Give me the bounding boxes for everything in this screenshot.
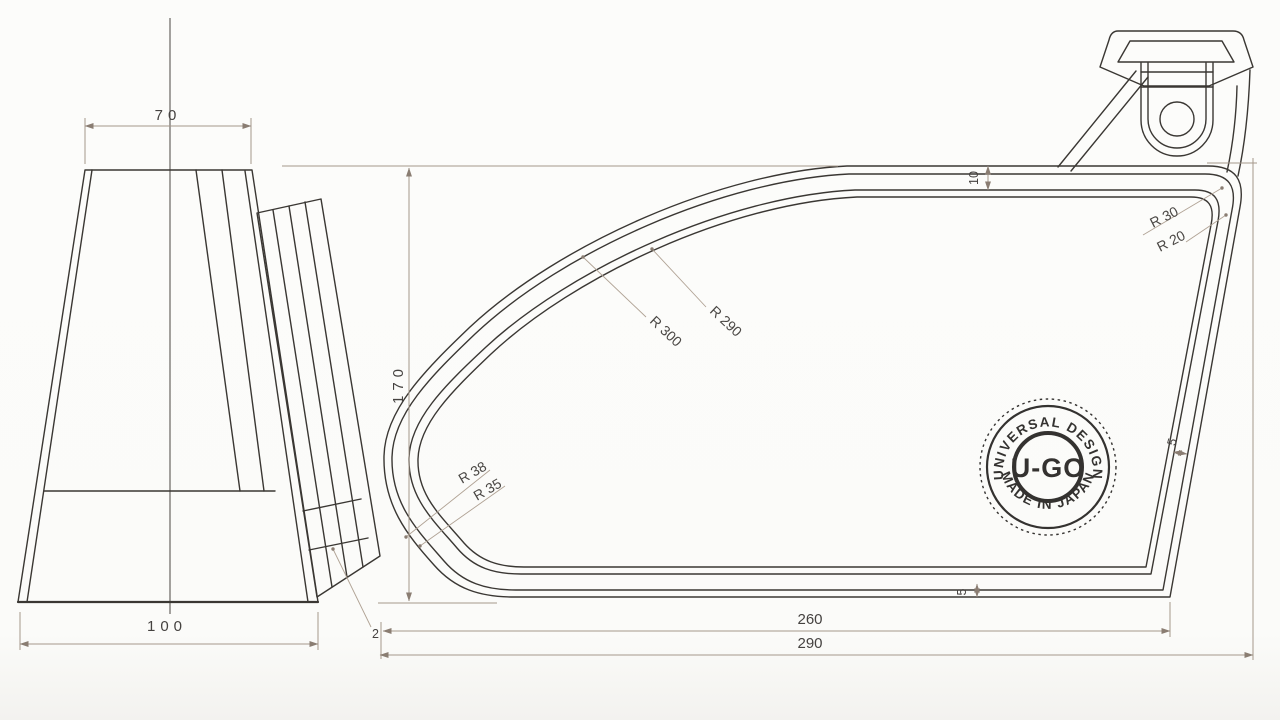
- front-view-outline: [18, 170, 318, 602]
- hook-gusset-line-2: [1071, 77, 1148, 171]
- dim-5-bottom: 5: [955, 588, 969, 595]
- dim-290: 290: [797, 635, 822, 652]
- hook-hole: [1160, 102, 1194, 136]
- label-thickness-2: 2: [372, 627, 379, 641]
- dim-line-5-right: [1173, 452, 1187, 454]
- rear-panel-slat-1: [273, 210, 332, 587]
- radius-label-r300: R 300: [647, 312, 685, 349]
- profile-inner-line: [418, 197, 1212, 567]
- hook-neck-curve-outer: [1238, 70, 1250, 176]
- dim-70: 70: [155, 107, 182, 124]
- stamp-center-text: U-GO: [1011, 453, 1086, 483]
- leader-r290: [652, 249, 706, 307]
- hook-ring-inner: [1118, 41, 1234, 62]
- dim-10: 10: [967, 171, 981, 185]
- left-edge-inner-line: [27, 170, 92, 602]
- rear-panel: [257, 199, 380, 597]
- drawing-sheet: 70 100 170 10 5 5 260 290 2: [0, 0, 1280, 720]
- radius-label-r30: R 30: [1147, 203, 1181, 231]
- wall-fold-line-1: [196, 170, 240, 491]
- dim-170: 170: [390, 364, 407, 404]
- radius-label-r20: R 20: [1154, 227, 1188, 255]
- leader-line-thickness: [333, 549, 371, 627]
- dim-260: 260: [797, 611, 822, 628]
- profile-line-3: [409, 190, 1219, 574]
- hook-ring-outer: [1100, 31, 1253, 86]
- hook-tab-outer: [1141, 63, 1213, 156]
- technical-drawing: 70 100 170 10 5 5 260 290 2: [0, 0, 1280, 720]
- rear-panel-cross-line-1: [303, 499, 361, 511]
- profile-outer-line: [384, 166, 1241, 597]
- dim-5-right: 5: [1164, 437, 1179, 447]
- rear-panel-slat-3: [305, 202, 363, 567]
- rear-panel-slat-2: [289, 206, 347, 577]
- leader-r300: [583, 257, 646, 317]
- leader-r20: [1186, 215, 1226, 242]
- profile-line-2: [392, 174, 1233, 590]
- brand-stamp: UNIVERSAL DESIGN MADE IN JAPAN U-GO: [980, 399, 1116, 535]
- hanging-hook: [1058, 31, 1253, 176]
- side-view: [384, 166, 1241, 597]
- hook-tab-inner: [1148, 63, 1206, 148]
- dim-100: 100: [147, 618, 187, 635]
- hook-neck-curve-inner: [1227, 86, 1237, 172]
- hook-gusset-line-1: [1058, 71, 1136, 167]
- radius-label-r290: R 290: [707, 302, 745, 339]
